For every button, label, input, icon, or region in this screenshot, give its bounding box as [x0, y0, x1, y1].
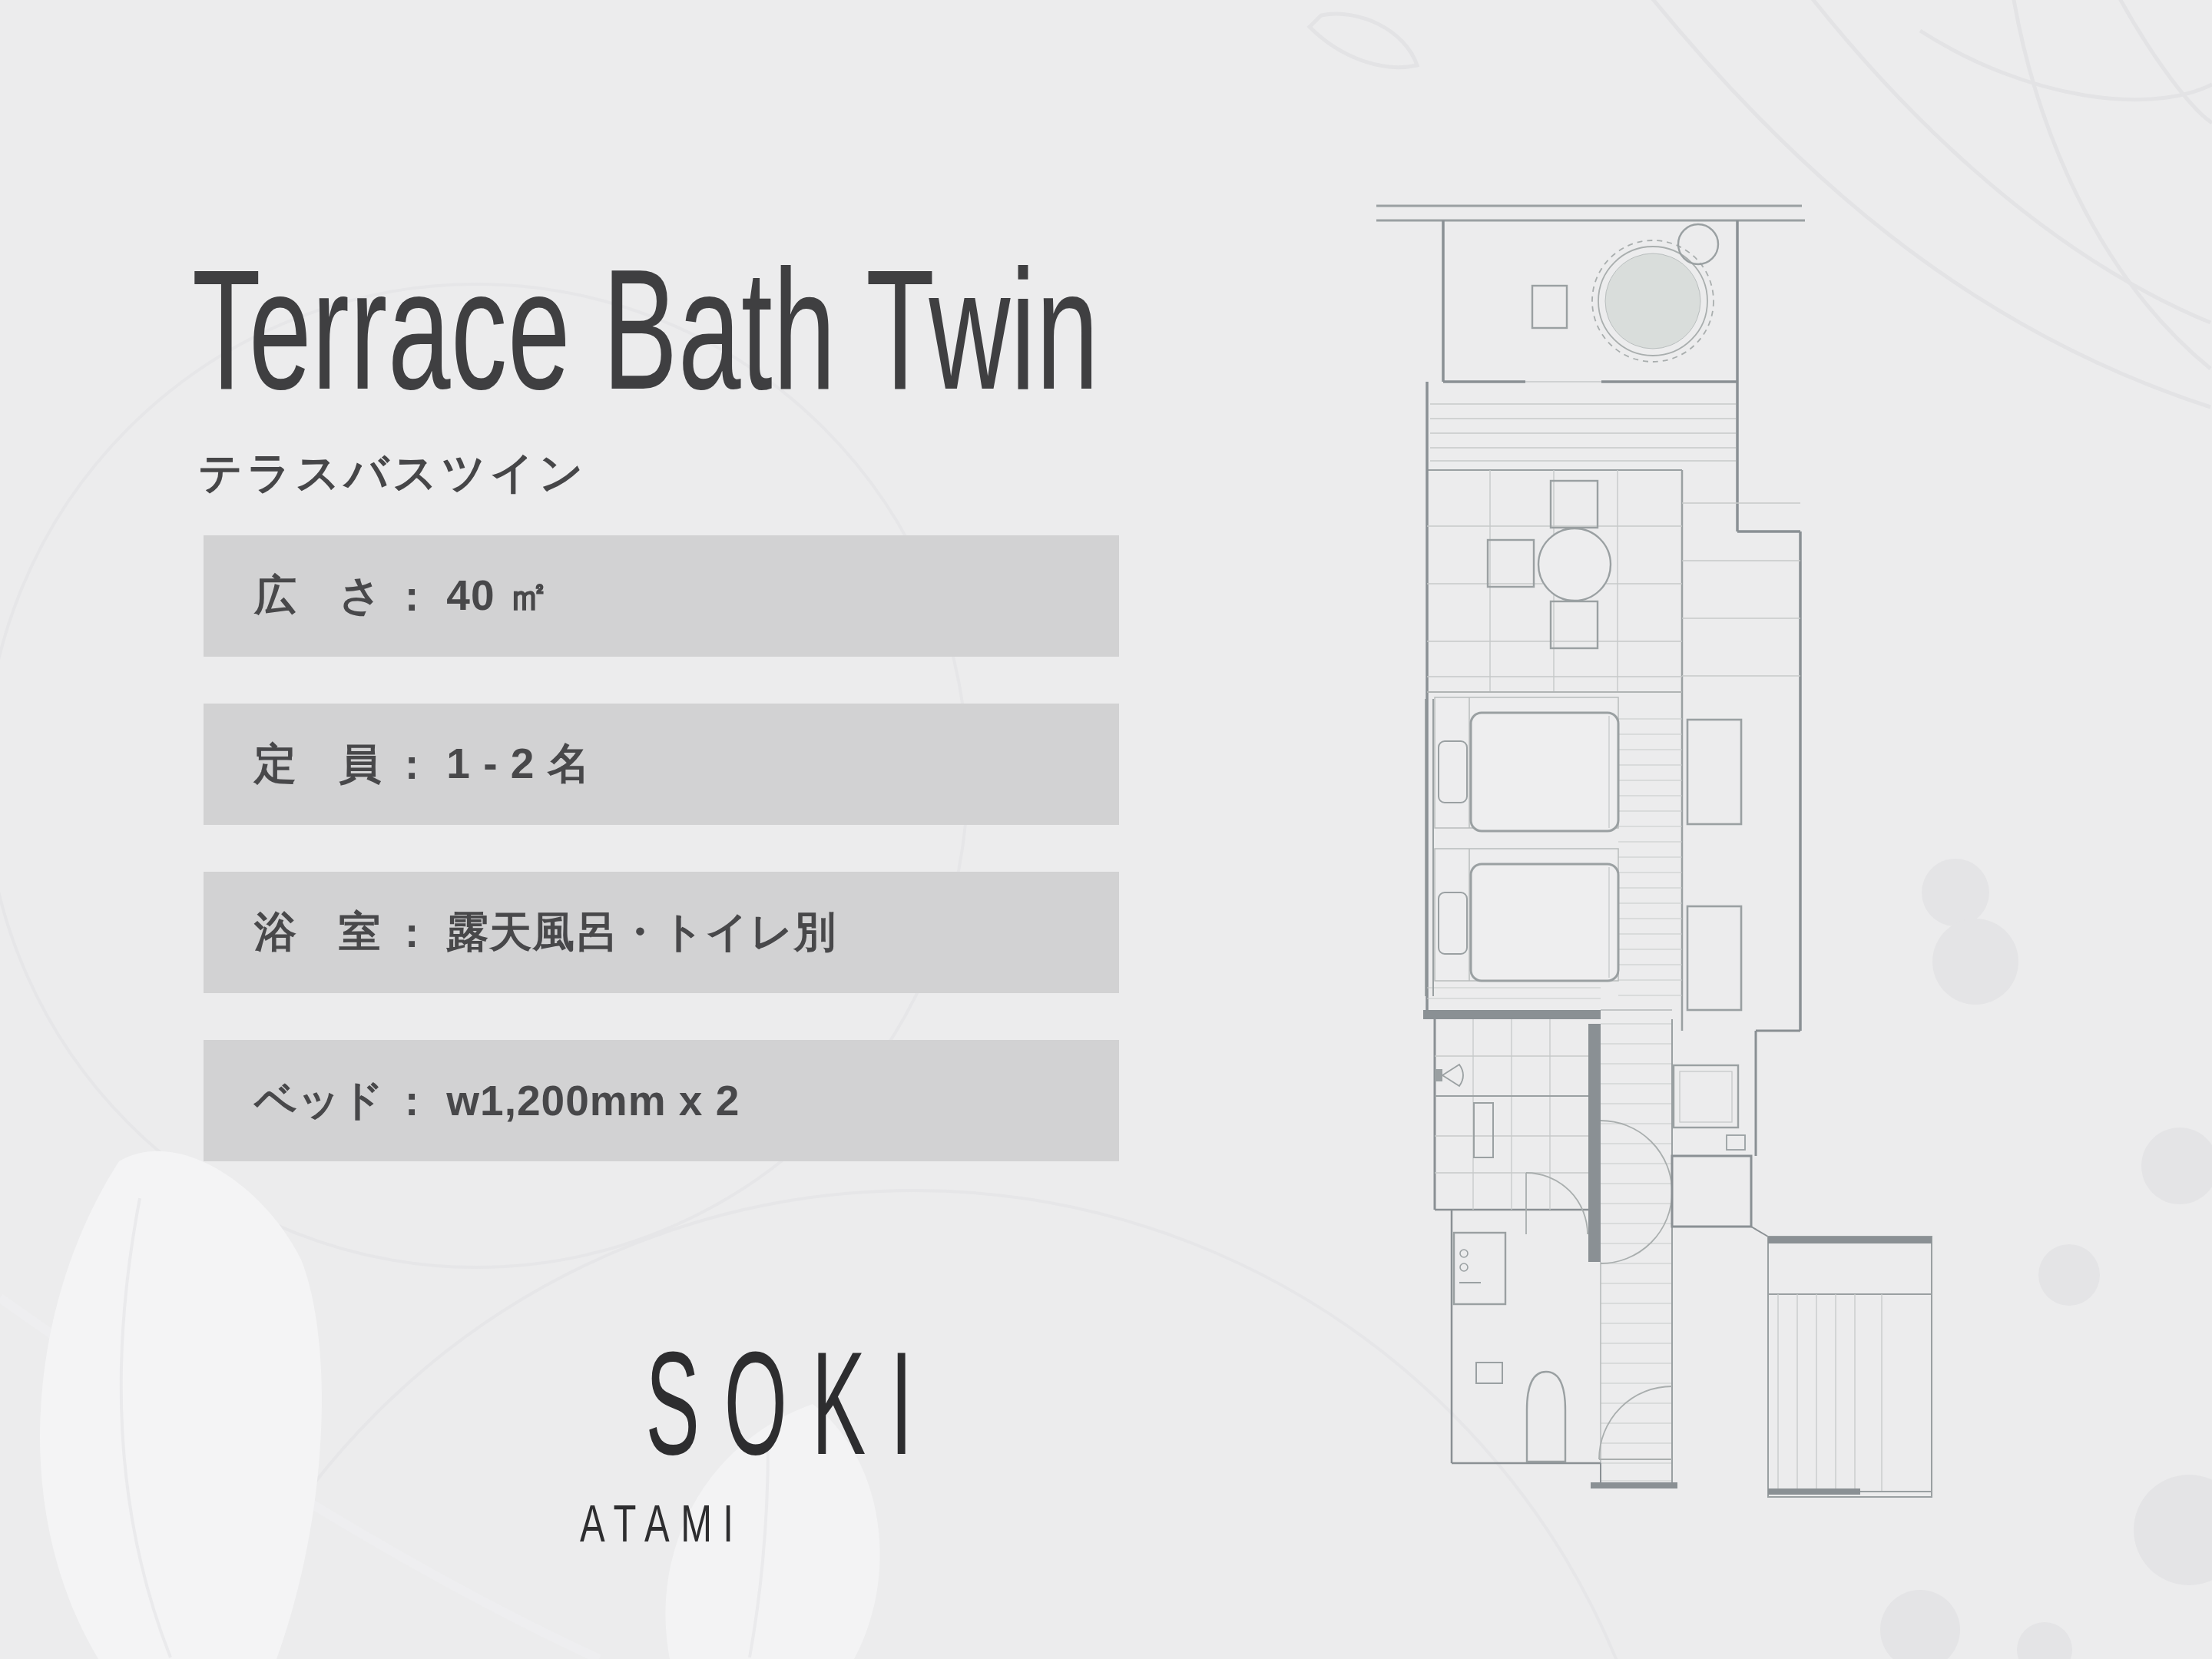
living-area	[1427, 470, 1682, 693]
washer-icon	[1674, 1065, 1738, 1128]
entrance	[1591, 1386, 1677, 1488]
double-door-arc	[1601, 1121, 1672, 1263]
spec-colon: :	[405, 1076, 419, 1125]
spec-colon: :	[405, 571, 419, 621]
hotel-logo: SOKI ATAMI	[492, 1330, 822, 1549]
room-info-page: Terrace Bath Twin テラスバスツイン 広 さ : 40 ㎡ 定 …	[0, 0, 2212, 1659]
spec-bar-bathroom: 浴 室 : 露天風呂・トイレ別	[204, 872, 1119, 993]
logo-brand-text: SOKI	[621, 1330, 937, 1477]
page-subtitle-japanese: テラスバスツイン	[198, 444, 588, 503]
shower-bench-icon	[1474, 1103, 1493, 1157]
spec-bar-bed: ベッド : w1,200mm x 2	[204, 1040, 1119, 1161]
side-table-icon	[1678, 224, 1718, 264]
spec-label: 広 さ	[254, 568, 405, 624]
twin-bed-icon	[1426, 697, 1682, 998]
bathroom-door-arc	[1526, 1173, 1588, 1234]
shower-head-icon	[1435, 1065, 1463, 1086]
spec-value: 40 ㎡	[446, 568, 550, 624]
spec-value: 1 - 2 名	[446, 736, 590, 793]
terrace-room	[1443, 220, 1737, 382]
toilet-icon	[1527, 1372, 1565, 1462]
utility-rooms	[1672, 1065, 1751, 1227]
open-air-bath-icon	[1592, 240, 1714, 362]
spec-label: ベッド	[254, 1072, 405, 1129]
storage-counter-icon	[1672, 1156, 1751, 1227]
spec-value: 露天風呂・トイレ別	[446, 904, 836, 961]
vanity-toilet-room	[1452, 1210, 1601, 1482]
spec-label: 浴 室	[254, 904, 405, 961]
spec-colon: :	[405, 740, 419, 789]
spec-value: w1,200mm x 2	[446, 1076, 740, 1125]
spec-bar-capacity: 定 員 : 1 - 2 名	[204, 704, 1119, 825]
spec-colon: :	[405, 908, 419, 957]
corridor	[1601, 1019, 1672, 1485]
shower-room-icon	[1435, 1019, 1601, 1262]
logo-location-text: ATAMI	[538, 1497, 776, 1549]
terrace-stool-icon	[1532, 286, 1567, 328]
spec-bar-size: 広 さ : 40 ㎡	[204, 535, 1119, 657]
terrace-deck-icon	[1427, 404, 1736, 470]
spec-label: 定 員	[254, 736, 405, 793]
porch-icon	[1768, 1237, 1932, 1497]
washbasin-icon	[1454, 1233, 1505, 1304]
closet-icon	[1682, 503, 1800, 1010]
site-boundary-wall	[1376, 206, 1805, 220]
page-title: Terrace Bath Twin	[192, 244, 1099, 415]
room-floor-plan	[1344, 177, 1959, 1513]
content-layer: Terrace Bath Twin テラスバスツイン 広 さ : 40 ㎡ 定 …	[0, 0, 2212, 1659]
tea-table-icon	[1488, 481, 1611, 648]
